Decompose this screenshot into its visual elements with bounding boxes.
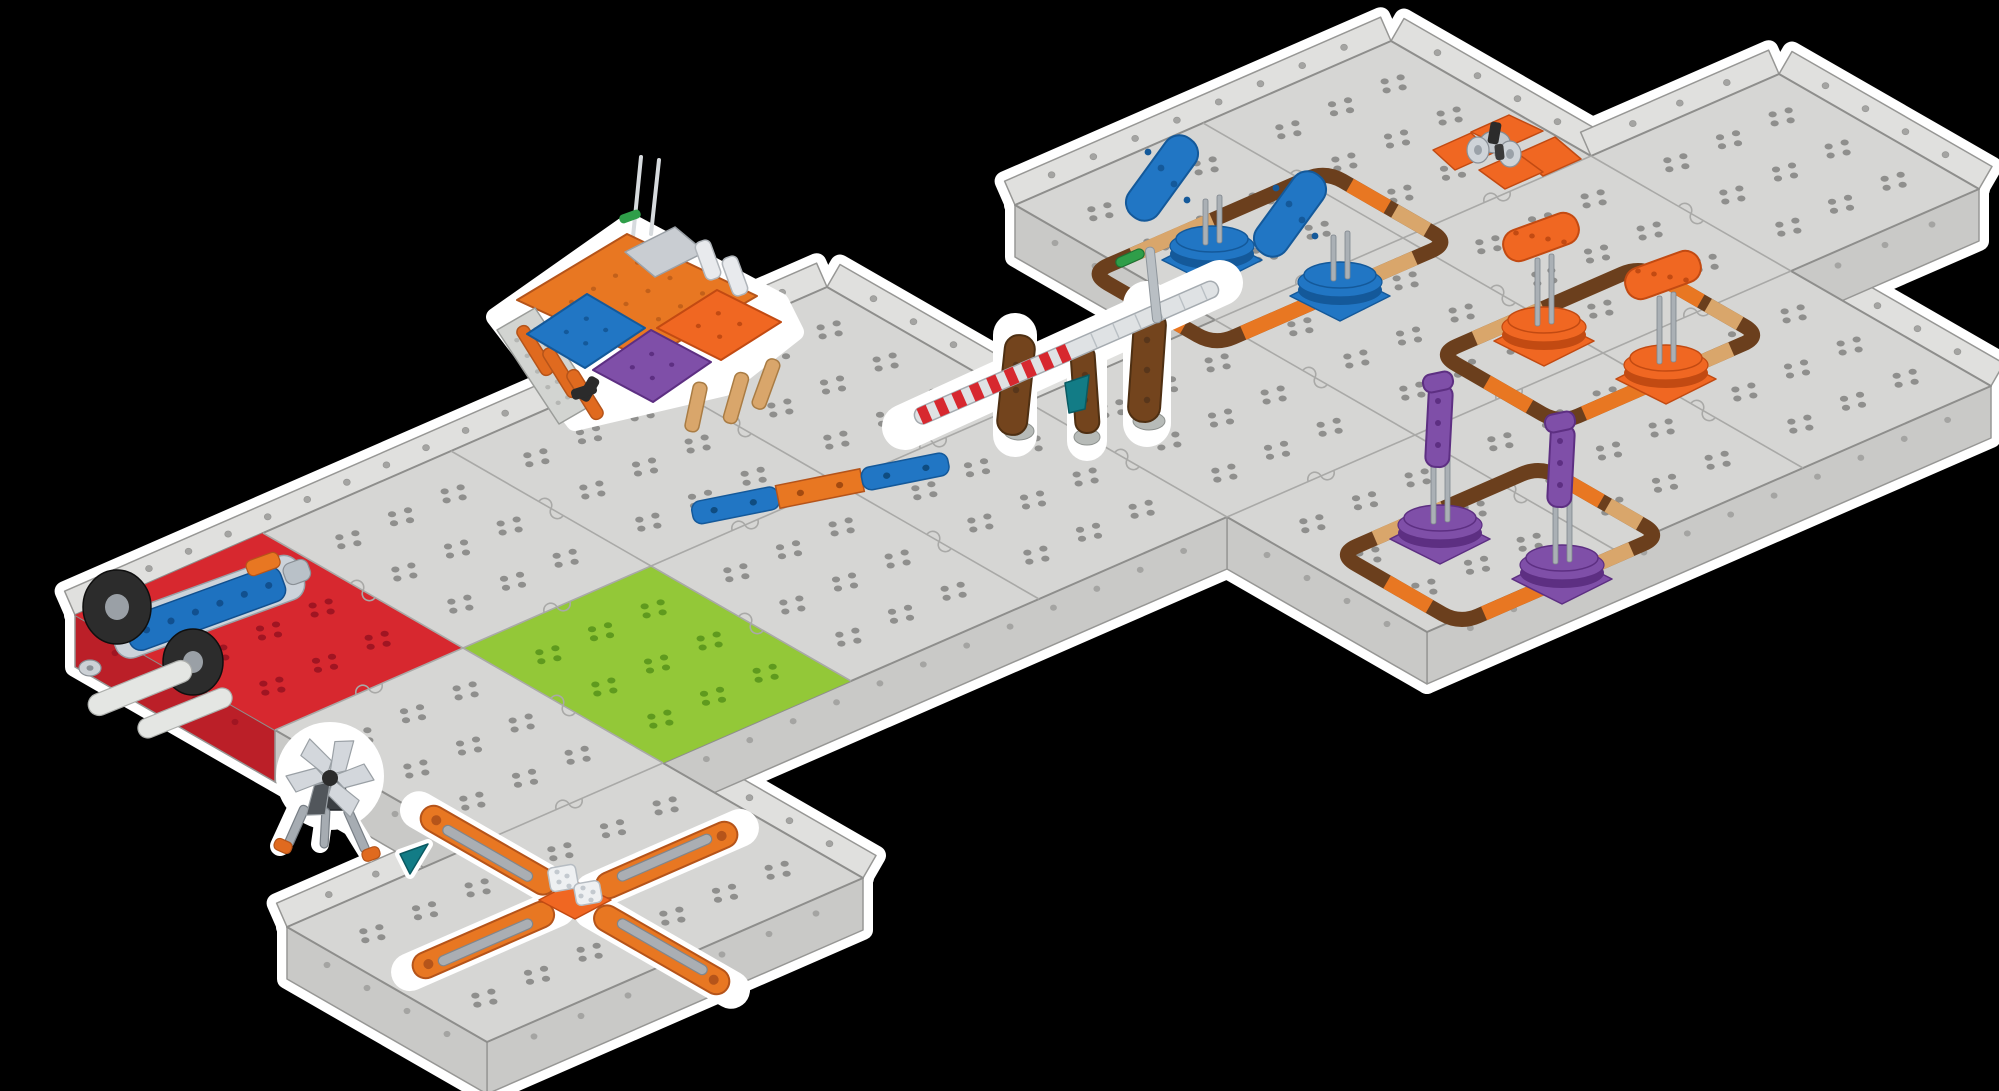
pin-hole <box>873 357 881 363</box>
stud <box>645 289 650 293</box>
pin-hole <box>703 445 711 451</box>
stud <box>669 362 674 366</box>
pin-hole <box>831 530 839 536</box>
pin-hole <box>1598 455 1606 461</box>
pin-hole <box>1423 478 1431 484</box>
pin-hole <box>256 626 264 632</box>
pin-hole <box>569 549 577 555</box>
pin-hole <box>1783 317 1791 323</box>
pin-hole <box>567 759 575 765</box>
pin-hole <box>1173 441 1181 447</box>
pin-hole <box>555 562 563 568</box>
pin-hole <box>449 608 457 614</box>
pin-hole <box>1023 550 1031 556</box>
pin-hole <box>377 934 385 940</box>
pin-hole <box>835 632 843 638</box>
pin-hole <box>714 897 722 903</box>
stud <box>584 316 589 320</box>
pin-hole <box>475 792 483 798</box>
pin-hole <box>365 635 373 641</box>
pin-hole <box>1723 461 1731 467</box>
pin-hole <box>1022 504 1030 510</box>
pin-hole <box>635 517 643 523</box>
pin-hole <box>1105 212 1113 218</box>
pin-hole <box>597 490 605 496</box>
pin-hole <box>1145 500 1153 506</box>
pin-hole <box>1465 304 1473 310</box>
pin-hole <box>1612 442 1620 448</box>
pin-hole <box>1719 189 1727 195</box>
wall-hole <box>1093 586 1100 592</box>
wall-hole <box>1822 83 1829 89</box>
arm-hole <box>1312 233 1319 240</box>
pin-hole <box>525 461 533 467</box>
stud <box>623 302 628 306</box>
pin-hole <box>1115 399 1123 405</box>
pin-hole <box>404 507 412 513</box>
pin-hole <box>1429 589 1437 595</box>
pin-hole <box>646 668 654 674</box>
pin-hole <box>577 947 585 953</box>
pin-hole <box>837 641 845 647</box>
pin-hole <box>1383 87 1391 93</box>
stud <box>514 338 519 342</box>
pin-hole <box>850 583 858 589</box>
pin-hole <box>1793 228 1801 234</box>
pin-hole <box>465 605 473 611</box>
pin-hole <box>407 562 415 568</box>
pin-hole <box>1533 533 1541 539</box>
pin-hole <box>820 380 828 386</box>
post <box>1657 296 1662 364</box>
pin-hole <box>1771 120 1779 126</box>
pin-hole <box>753 668 761 674</box>
stud <box>696 324 701 328</box>
pin-hole <box>1393 275 1401 281</box>
post <box>1535 258 1540 326</box>
stud <box>1545 237 1551 242</box>
tower <box>1547 424 1575 507</box>
pin-hole <box>1317 524 1325 530</box>
pin-hole <box>393 575 401 581</box>
pin-hole <box>1803 415 1811 421</box>
pin-hole <box>375 924 383 930</box>
pin-hole <box>459 796 467 802</box>
pinwheel-tripod <box>272 722 384 863</box>
pin-hole <box>1707 464 1715 470</box>
pin-hole <box>330 664 338 670</box>
wall-hole <box>1474 73 1481 79</box>
pin-hole <box>474 747 482 753</box>
pin-hole <box>1856 392 1864 398</box>
pin-hole <box>959 592 967 598</box>
pin-hole <box>1844 195 1852 201</box>
pin-hole <box>1301 527 1309 533</box>
pin-hole <box>1709 254 1717 260</box>
post <box>1549 254 1554 324</box>
wall-hole <box>1007 624 1014 630</box>
pin-hole <box>836 376 844 382</box>
pin-hole <box>688 494 696 500</box>
arm-hole <box>1299 217 1306 224</box>
pin-hole <box>1205 357 1213 363</box>
pin-hole <box>513 517 521 523</box>
pin-hole <box>1303 317 1311 323</box>
pin-hole <box>699 645 707 651</box>
pin-hole <box>1171 431 1179 437</box>
pin-hole <box>1605 310 1613 316</box>
wall-hole <box>1304 575 1311 581</box>
wall-hole <box>1137 567 1144 573</box>
pin-hole <box>1453 107 1461 113</box>
pin-hole <box>1345 362 1353 368</box>
wall-hole <box>1902 129 1909 135</box>
pin-hole <box>446 553 454 559</box>
pin-hole <box>730 894 738 900</box>
pin-hole <box>383 641 391 647</box>
pin-hole <box>851 628 859 634</box>
pin-hole <box>541 458 549 464</box>
stud <box>678 304 683 308</box>
pin-hole <box>335 534 343 540</box>
pin-hole <box>911 485 919 491</box>
pin-hole <box>835 330 843 336</box>
pin-hole <box>1784 364 1792 370</box>
pin-hole <box>1317 422 1325 428</box>
pin-hole <box>741 573 749 579</box>
pin-hole <box>1399 386 1407 392</box>
pin-hole <box>1858 402 1866 408</box>
wall-hole <box>444 1031 451 1037</box>
pin-hole <box>665 720 673 726</box>
scene-stage <box>0 0 1999 1091</box>
pin-hole <box>595 480 603 486</box>
pin-hole <box>277 687 285 693</box>
stud <box>630 365 635 369</box>
stud <box>578 894 583 899</box>
pin-hole <box>527 724 535 730</box>
pin-hole <box>1772 167 1780 173</box>
pin-hole <box>662 665 670 671</box>
tower <box>1425 384 1453 467</box>
pin-hole <box>547 846 555 852</box>
pin-hole <box>1227 464 1235 470</box>
pin-hole <box>361 937 369 943</box>
pin-hole <box>1830 208 1838 214</box>
wall-hole <box>1299 62 1306 68</box>
pin-hole <box>941 586 949 592</box>
stud <box>588 898 593 903</box>
pin-hole <box>1449 308 1457 314</box>
pin-hole <box>1841 140 1849 146</box>
wall-hole <box>264 514 271 520</box>
wall-hole <box>1676 100 1683 106</box>
pin-hole <box>1733 395 1741 401</box>
pin-hole <box>885 554 893 560</box>
pin-hole <box>632 462 640 468</box>
pin-hole <box>565 852 573 858</box>
pin-hole <box>453 685 461 691</box>
turntable-top <box>1404 505 1476 531</box>
pin-hole <box>1670 484 1678 490</box>
wall-hole <box>325 891 332 897</box>
wall-hole <box>1050 605 1057 611</box>
pin-hole <box>651 513 659 519</box>
pin-hole <box>980 458 988 464</box>
pin-hole <box>1293 130 1301 136</box>
pin-hole <box>473 1002 481 1008</box>
wall-hole <box>1727 511 1734 517</box>
pin-hole <box>1899 182 1907 188</box>
pin-hole <box>483 888 491 894</box>
pin-hole <box>1346 107 1354 113</box>
pin-hole <box>497 521 505 527</box>
pin-hole <box>258 635 266 641</box>
stud <box>667 276 672 280</box>
pin-hole <box>1786 373 1794 379</box>
wall-hole <box>1344 598 1351 604</box>
wall-hole <box>232 719 239 725</box>
tower-hole <box>1435 398 1441 404</box>
pin-hole <box>785 408 793 414</box>
pin-hole <box>643 612 651 618</box>
pin-hole <box>1735 185 1743 191</box>
pin-hole <box>359 928 367 934</box>
pin-hole <box>1349 162 1357 168</box>
wall-hole <box>1929 221 1936 227</box>
pin-hole <box>1089 468 1097 474</box>
pin-hole <box>1581 193 1589 199</box>
wall-hole <box>1684 530 1691 536</box>
post <box>1203 199 1208 245</box>
pin-hole <box>1405 472 1413 478</box>
wheel-hub <box>105 594 129 620</box>
wall-hole <box>1814 474 1821 480</box>
pin-hole <box>1414 337 1422 343</box>
pin-hole <box>637 526 645 532</box>
pin-hole <box>1091 478 1099 484</box>
pin-hole <box>778 553 786 559</box>
pin-hole <box>1075 481 1083 487</box>
pin-hole <box>327 609 335 615</box>
pin-hole <box>460 540 468 546</box>
pin-hole <box>943 595 951 601</box>
wall-hole <box>963 642 970 648</box>
stud <box>700 291 705 295</box>
pin-hole <box>1681 163 1689 169</box>
pin-hole <box>1789 428 1797 434</box>
pin-hole <box>1839 350 1847 356</box>
pin-hole <box>535 649 543 655</box>
wall-hole <box>1914 326 1921 332</box>
pin-hole <box>795 595 803 601</box>
pin-hole <box>1842 405 1850 411</box>
pin-hole <box>1229 474 1237 480</box>
pin-hole <box>1853 337 1861 343</box>
pin-hole <box>487 989 495 995</box>
wall-hole <box>766 931 773 937</box>
pin-hole <box>906 615 914 621</box>
pin-hole <box>353 540 361 546</box>
pin-hole <box>718 697 726 703</box>
pin-hole <box>1602 255 1610 261</box>
pin-hole <box>471 993 479 999</box>
pin-hole <box>1596 446 1604 452</box>
wall-hole <box>578 1013 585 1019</box>
pin-hole <box>1466 569 1474 575</box>
wall-hole <box>719 951 726 957</box>
pin-hole <box>890 618 898 624</box>
pin-hole <box>351 530 359 536</box>
pin-hole <box>1399 84 1407 90</box>
pin-hole <box>969 526 977 532</box>
arm-hole <box>1184 197 1191 204</box>
pin-hole <box>337 543 345 549</box>
pin-hole <box>697 636 705 642</box>
stud <box>556 880 561 885</box>
pin-hole <box>783 871 791 877</box>
pin-hole <box>581 493 589 499</box>
pin-hole <box>441 488 449 494</box>
pin-hole <box>913 494 921 500</box>
pin-hole <box>1370 501 1378 507</box>
pin-hole <box>1583 202 1591 208</box>
pin-hole <box>1038 501 1046 507</box>
pin-hole <box>759 477 767 483</box>
pin-hole <box>447 599 455 605</box>
tower-hole <box>1435 420 1441 426</box>
pin-hole <box>1775 222 1783 228</box>
pin-hole <box>1599 199 1607 205</box>
pin-hole <box>1603 300 1611 306</box>
pin-hole <box>901 550 909 556</box>
pin-hole <box>1665 166 1673 172</box>
pin-hole <box>779 599 787 605</box>
pin-hole <box>328 654 336 660</box>
pin-hole <box>1895 382 1903 388</box>
stud <box>649 352 654 356</box>
wall-hole <box>1257 81 1264 87</box>
stud <box>1513 231 1519 236</box>
wall-hole <box>1942 152 1949 158</box>
pin-hole <box>1147 510 1155 516</box>
wall-hole <box>304 496 311 502</box>
wall-hole <box>324 962 331 968</box>
stud <box>717 334 722 338</box>
pin-hole <box>595 953 603 959</box>
pin-hole <box>1157 444 1165 450</box>
pin-hole <box>1800 360 1808 366</box>
pin-hole <box>1475 239 1483 245</box>
pin-hole <box>1405 195 1413 201</box>
wall-hole <box>746 795 753 801</box>
tower-hole <box>1557 460 1563 466</box>
pin-hole <box>275 677 283 683</box>
pin-hole <box>929 491 937 497</box>
pin-hole <box>462 550 470 556</box>
pin-hole <box>511 727 519 733</box>
pin-hole <box>367 644 375 650</box>
hub <box>1506 149 1514 159</box>
pin-hole <box>834 586 842 592</box>
arm-hole <box>1273 185 1280 192</box>
stud <box>613 274 618 278</box>
pin-hole <box>1287 321 1295 327</box>
pin-hole <box>403 763 411 769</box>
pin-hole <box>741 471 749 477</box>
pin-hole <box>1881 176 1889 182</box>
pin-hole <box>471 691 479 697</box>
tower-hole <box>1557 482 1563 488</box>
stud <box>564 330 569 334</box>
pin-hole <box>418 714 426 720</box>
pin-hole <box>819 333 827 339</box>
pin-hole <box>456 741 464 747</box>
pin-hole <box>1837 341 1845 347</box>
pin-hole <box>1911 379 1919 385</box>
pin-hole <box>1092 523 1100 529</box>
pin-hole <box>1651 432 1659 438</box>
pin-hole <box>1396 331 1404 337</box>
stud <box>737 322 742 326</box>
wall-hole <box>1944 417 1951 423</box>
pin-hole <box>661 920 669 926</box>
pin-hole <box>781 608 789 614</box>
pin-hole <box>1411 583 1419 589</box>
pin-hole <box>1409 271 1417 277</box>
stud <box>1683 278 1689 283</box>
pin-hole <box>274 632 282 638</box>
pin-hole <box>817 324 825 330</box>
pin-hole <box>1479 511 1487 517</box>
pin-hole <box>1280 441 1288 447</box>
pin-hole <box>1437 111 1445 117</box>
pin-hole <box>1600 245 1608 251</box>
pin-hole <box>891 363 899 369</box>
pin-hole <box>1264 445 1272 451</box>
pin-hole <box>1480 556 1488 562</box>
pin-hole <box>489 999 497 1005</box>
wall-hole <box>364 985 371 991</box>
pin-hole <box>1333 418 1341 424</box>
pin-hole <box>388 511 396 517</box>
pin-hole <box>509 718 517 724</box>
pin-hole <box>1335 428 1343 434</box>
stud <box>1561 240 1567 245</box>
arm-hole <box>1286 201 1293 208</box>
arm-hole <box>1145 149 1152 156</box>
wall-hole <box>910 319 917 325</box>
pin-hole <box>1089 215 1097 221</box>
pin-hole <box>767 402 775 408</box>
pin-hole <box>1493 245 1501 251</box>
pin-hole <box>542 976 550 982</box>
pin-hole <box>1655 232 1663 238</box>
pin-hole <box>716 687 724 693</box>
pin-hole <box>1331 156 1339 162</box>
pillar-hole <box>1144 367 1150 373</box>
pin-hole <box>443 497 451 503</box>
pin-hole <box>702 700 710 706</box>
pin-hole <box>1427 579 1435 585</box>
pin-hole <box>1412 327 1420 333</box>
pin-hole <box>757 467 765 473</box>
pin-hole <box>783 398 791 404</box>
pin-hole <box>1587 304 1595 310</box>
pin-hole <box>1211 166 1219 172</box>
pin-hole <box>1207 366 1215 372</box>
pin-hole <box>1078 536 1086 542</box>
